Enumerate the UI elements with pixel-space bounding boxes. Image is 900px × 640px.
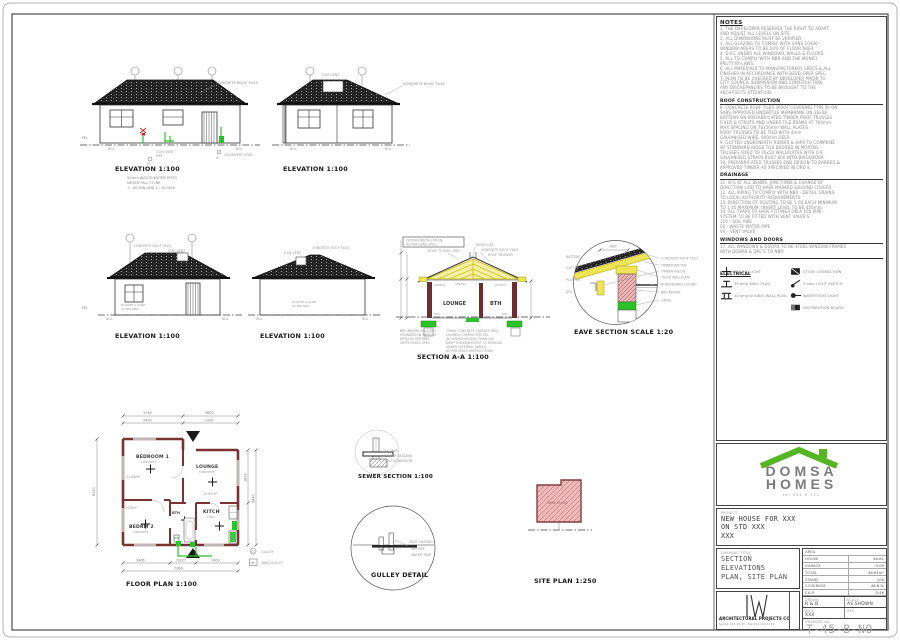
notes-general: 1. THE DEVELOPER RESERVES THE RIGHT TO A… [720,27,883,96]
tiles-label: CONCRETE ROOF TILES [481,248,518,252]
section-title: SECTION A-A 1:100 [417,353,489,361]
sewer-label-3: ON FOUNDATION [385,459,413,463]
legend-label: CEILING LIGHT [734,270,761,274]
label-gutter: GUTTER [566,266,580,270]
drawing-number-row: DRAWING No. T-45-B-NO [803,618,886,636]
plaster-note2: AS PER SPEC [292,304,310,308]
sewer-title: SEWER SECTION 1:100 [358,474,433,480]
vent-label: S DE VENT [284,251,301,255]
notes-panel: NOTES 1. THE DEVELOPER RESERVES THE RIGH… [716,16,887,441]
drawing-number: T-45-B-NO [805,624,884,636]
ngl-right: NGL [222,317,229,321]
room-lounge: LOUNGE [443,301,467,307]
label-wallplate: 76x50 WALLPLATE [661,276,690,280]
stove-connection-icon [790,267,801,276]
lounge-area: 11.97m² [203,492,218,496]
lintels-right: LINTELS [495,283,507,287]
area-table: AREA HOUSE46.61 GARAGE0.00 TOTAL46.61m² … [803,549,886,596]
waste-note-2: NEVER FALL TO BE [127,181,161,185]
ngl-left: NGL [290,147,297,151]
elevation-1-title: ELEVATION 1:100 [115,165,180,173]
vent-label: S DE VENT [168,249,185,253]
drawing-sheet: FFL NGL NGL CONCRETE ROOF TILES 110V VEN… [0,0,900,640]
logo-roof-icon [741,446,861,468]
floor-plan-title: FLOOR PLAN 1:100 [126,580,197,588]
roof-tiles-label: CONCRETE ROOF TILES [312,246,349,250]
drawing-title: SECTION ELEVATIONS PLAN, SITE PLAN [721,555,795,583]
sewer-label-2: SEWER BEDDING [385,454,413,458]
project-name: NEW HOUSE FOR XXX ON STD XXX XXX [721,515,882,541]
legend-label: 30 amp WALL PLUG [734,282,770,286]
bedrm2-finish: CONCRETE [133,530,149,534]
ngl-left: NGL [108,147,115,151]
dim-total: 7366 [174,567,183,571]
legend-row: WATERTIGHT LIGHT [790,291,884,300]
wall-plug-icon [721,279,732,288]
electrical-legend: ELECTRICAL CEILING LIGHT 30 amp WALL PLU… [720,258,883,326]
drainage-heading: DRAINAGE [720,173,883,180]
drawing-title-box: DRAWING TITLE SECTION ELEVATIONS PLAN, S… [716,548,800,589]
roof-tiles-label: CONCRETE ROOF TILES [403,82,446,86]
elevation-2-title: ELEVATION 1:100 [283,165,348,173]
vent-pipe-label2: PIPE [156,154,163,158]
legend-row: CEILING LIGHT [721,267,785,276]
area-label: STAND [803,576,849,583]
area-row: STAND100 [803,576,886,583]
area-meta-table: AREA HOUSE46.61 GARAGE0.00 TOTAL46.61m² … [802,548,887,630]
legend-label: WATERTIGHT LIGHT [803,294,839,298]
legend-ye-symbol: YE [251,561,255,565]
dim-top-2: 3620 [205,411,214,415]
area-value: 0.00 [849,562,886,569]
ridge-cap-label: RIDGE CAP [476,243,494,247]
drainage-notes: 11. IE'S AT ALL BENDS, JUNCTIONS & CHANG… [720,181,883,235]
label-fascia: TIMBER FASCIA [660,270,686,274]
dim-right-2: 5440 [252,494,256,503]
architect-contact: te 011 111 11 11 - fax 011 111 1111 [719,622,775,626]
logo-name-2: HOMES [717,478,886,491]
project-box: PROJECT NEW HOUSE FOR XXX ON STD XXX XXX [716,508,887,546]
bedrm2-area: 7.03m² [125,506,138,510]
area-row: TOTAL46.61m² [803,569,886,576]
ngl-right: NGL [236,147,243,151]
gulley-label-2: 100 PIPE [411,547,425,551]
area-value: 46.61 [849,555,886,562]
waste-note-3: 1 : 60 MIN AND 1 : 40 MAX [127,186,176,190]
area-value: 46.61m² [849,569,886,576]
legend-row: 30 amp WALL PLUG [721,279,785,288]
area-row: F.A.R0.46 [803,589,886,596]
site-plan-title: SITE PLAN 1:250 [534,577,597,585]
dim-bot-3: 1400 [211,559,220,563]
legend-row: 5 amp LIGHT SWITCH [790,279,884,288]
drawn-scale-row: DRAWNR & B SCALEAS SHOWN [803,596,886,607]
drawn-value: R & B [805,602,842,607]
dim-top-3: 2490 [143,419,152,423]
vent-label: S DE VENT [322,73,339,77]
roof-construction-notes: 8. CONCRETE ROOF TILES (ROOF COVERING TY… [720,106,883,170]
ngl-left: NGL [106,317,113,321]
door [186,283,200,315]
watertight-light-icon [790,291,801,300]
architect-box: ARCHITECTURAL PROJECTS CC te 011 111 11 … [716,591,800,630]
area-label: GARAGE [803,562,849,569]
area-row: HOUSE46.61 [803,555,886,562]
legend-row: 30 amp DOUBLE WALL PLUG [721,291,785,300]
elevation-3-title: ELEVATION 1:100 [115,332,180,340]
label-dpc: DPC [566,290,573,294]
label-ceiling: RHINOBOARD CEILING [661,283,697,287]
sewer-label-1: SOIL PIPE [383,449,398,453]
gulley-detail: VENT GRATING 100 PIPE WATER TRAP GULLEY … [351,506,435,590]
waste-note-1: 50mm WASTE WATER PIPES [127,176,178,180]
legend-label: 5 amp LIGHT SWITCH [803,282,843,286]
room-bth: BTH [490,301,501,307]
ffl-label: FFL [82,306,88,310]
legend-label: STOVE CONNECTION [803,270,841,274]
foundation-note-4: OR TO ENG'S SPEC [400,341,431,345]
rev-label: REV [847,609,884,613]
company-logo-box: DOMSA HOMES tel 011 5 111 [716,443,887,506]
lintels-left: LINTELS [434,283,446,287]
area-value: 46.6 % [849,582,886,589]
area-label: F.A.R [803,589,849,596]
scale-value: AS SHOWN [847,602,884,607]
legend-label: 30 amp DOUBLE WALL PLUG [734,294,787,298]
invert-level-label: 450 INVERT LEVEL [224,153,254,157]
roof-tiles-label: CONCRETE ROOF TILES [216,81,259,85]
dim-left: 6040 [92,487,96,496]
label-tiles: CONCRETE ROOF TILES [661,257,698,261]
dim-top-1: 3746 [143,411,152,415]
door [202,112,217,143]
logo-tagline: tel 011 5 111 [717,493,886,497]
electrical-column-left: CEILING LIGHT 30 amp WALL PLUG 30 amp DO… [721,267,785,303]
plaster-note2: AS PER SPEC [121,307,139,311]
bedroom1-area: 11.89m² [126,475,141,479]
legend-label: DISTRIBUTION BOARD [803,306,844,310]
revision-strip [789,592,799,629]
ngl-right: NGL [385,147,392,151]
label-brickwork: BRICKWORK [661,291,681,295]
label-rafter: TIMBER RAFTER [660,264,687,268]
ceiling-label: CEILING [455,282,466,286]
kitch-finish: CONC [207,515,215,519]
legend-row: DISTRIBUTION BOARD [790,303,884,312]
dim-bot-1: 3966 [136,559,145,563]
label-lintel: LINTEL [661,299,672,303]
label-plaster: PLASTER [566,278,581,282]
area-value: 0.46 [849,589,886,596]
wall [260,279,365,315]
bedroom1-finish: CONCRETE [141,460,157,464]
area-label: TOTAL [803,569,849,576]
roof-tiles-label: CONCRETE ROOF TILES [134,244,171,248]
dim-right-1: 2490 [244,473,248,482]
ceiling-light-icon [721,267,732,276]
date-value: XXX [805,613,842,618]
trusses-label: ROOF TRUSSES [488,253,513,257]
ngl-left: NGL [256,317,263,321]
eave-dim: 500 [610,245,616,249]
site-house-label: NEW HOUSE [548,501,568,505]
label-battens: BATTENS [566,255,580,259]
dpc-right: DPC [502,312,508,316]
lounge-finish: CONCRETE [199,470,215,474]
legend-gulley-label: - GULLEY [259,550,274,554]
dim-top-4: 2430 [205,419,214,423]
gulley-label-1: VENT GRATING [409,540,433,544]
gulley-title: GULLEY DETAIL [371,571,428,579]
geyser-note-2: AS PER SANS SPEC [406,243,437,247]
gulley-label-3: WATER TRAP [411,553,431,557]
elevation-4-title: ELEVATION 1:100 [260,332,325,340]
room-bth: BTH [172,511,180,515]
dpc-left: DPC [434,312,440,316]
legend-row: STOVE CONNECTION [790,267,884,276]
area-value: 100 [849,576,886,583]
area-row: COVERAGE46.6 % [803,582,886,589]
dim-bot-2: 2000 [176,559,185,563]
distribution-board-icon [790,303,801,312]
ffl-label: FFL [82,136,88,140]
electrical-column-right: STOVE CONNECTION 5 amp LIGHT SWITCH WATE… [790,267,884,315]
area-row: GARAGE0.00 [803,562,886,569]
date-rev-row: DATEXXX REV [803,607,886,618]
windows-doors-notes: 17. ALL WINDOWS & DOORS TO BE STEEL WIND… [720,245,883,255]
roof-spec-label: ROOF TO ENG. SPEC [428,249,461,253]
architect-name: ARCHITECTURAL PROJECTS CC [719,616,789,621]
eave-title: EAVE SECTION SCALE 1:20 [574,328,674,336]
ie-right: IE [216,156,219,160]
area-label: HOUSE [803,555,849,562]
light-switch-icon [790,279,801,288]
ngl-right: NGL [362,317,369,321]
double-wall-plug-icon [721,291,732,300]
area-label: COVERAGE [803,582,849,589]
legend-ye-label: - YARD GULLEY [259,561,283,565]
